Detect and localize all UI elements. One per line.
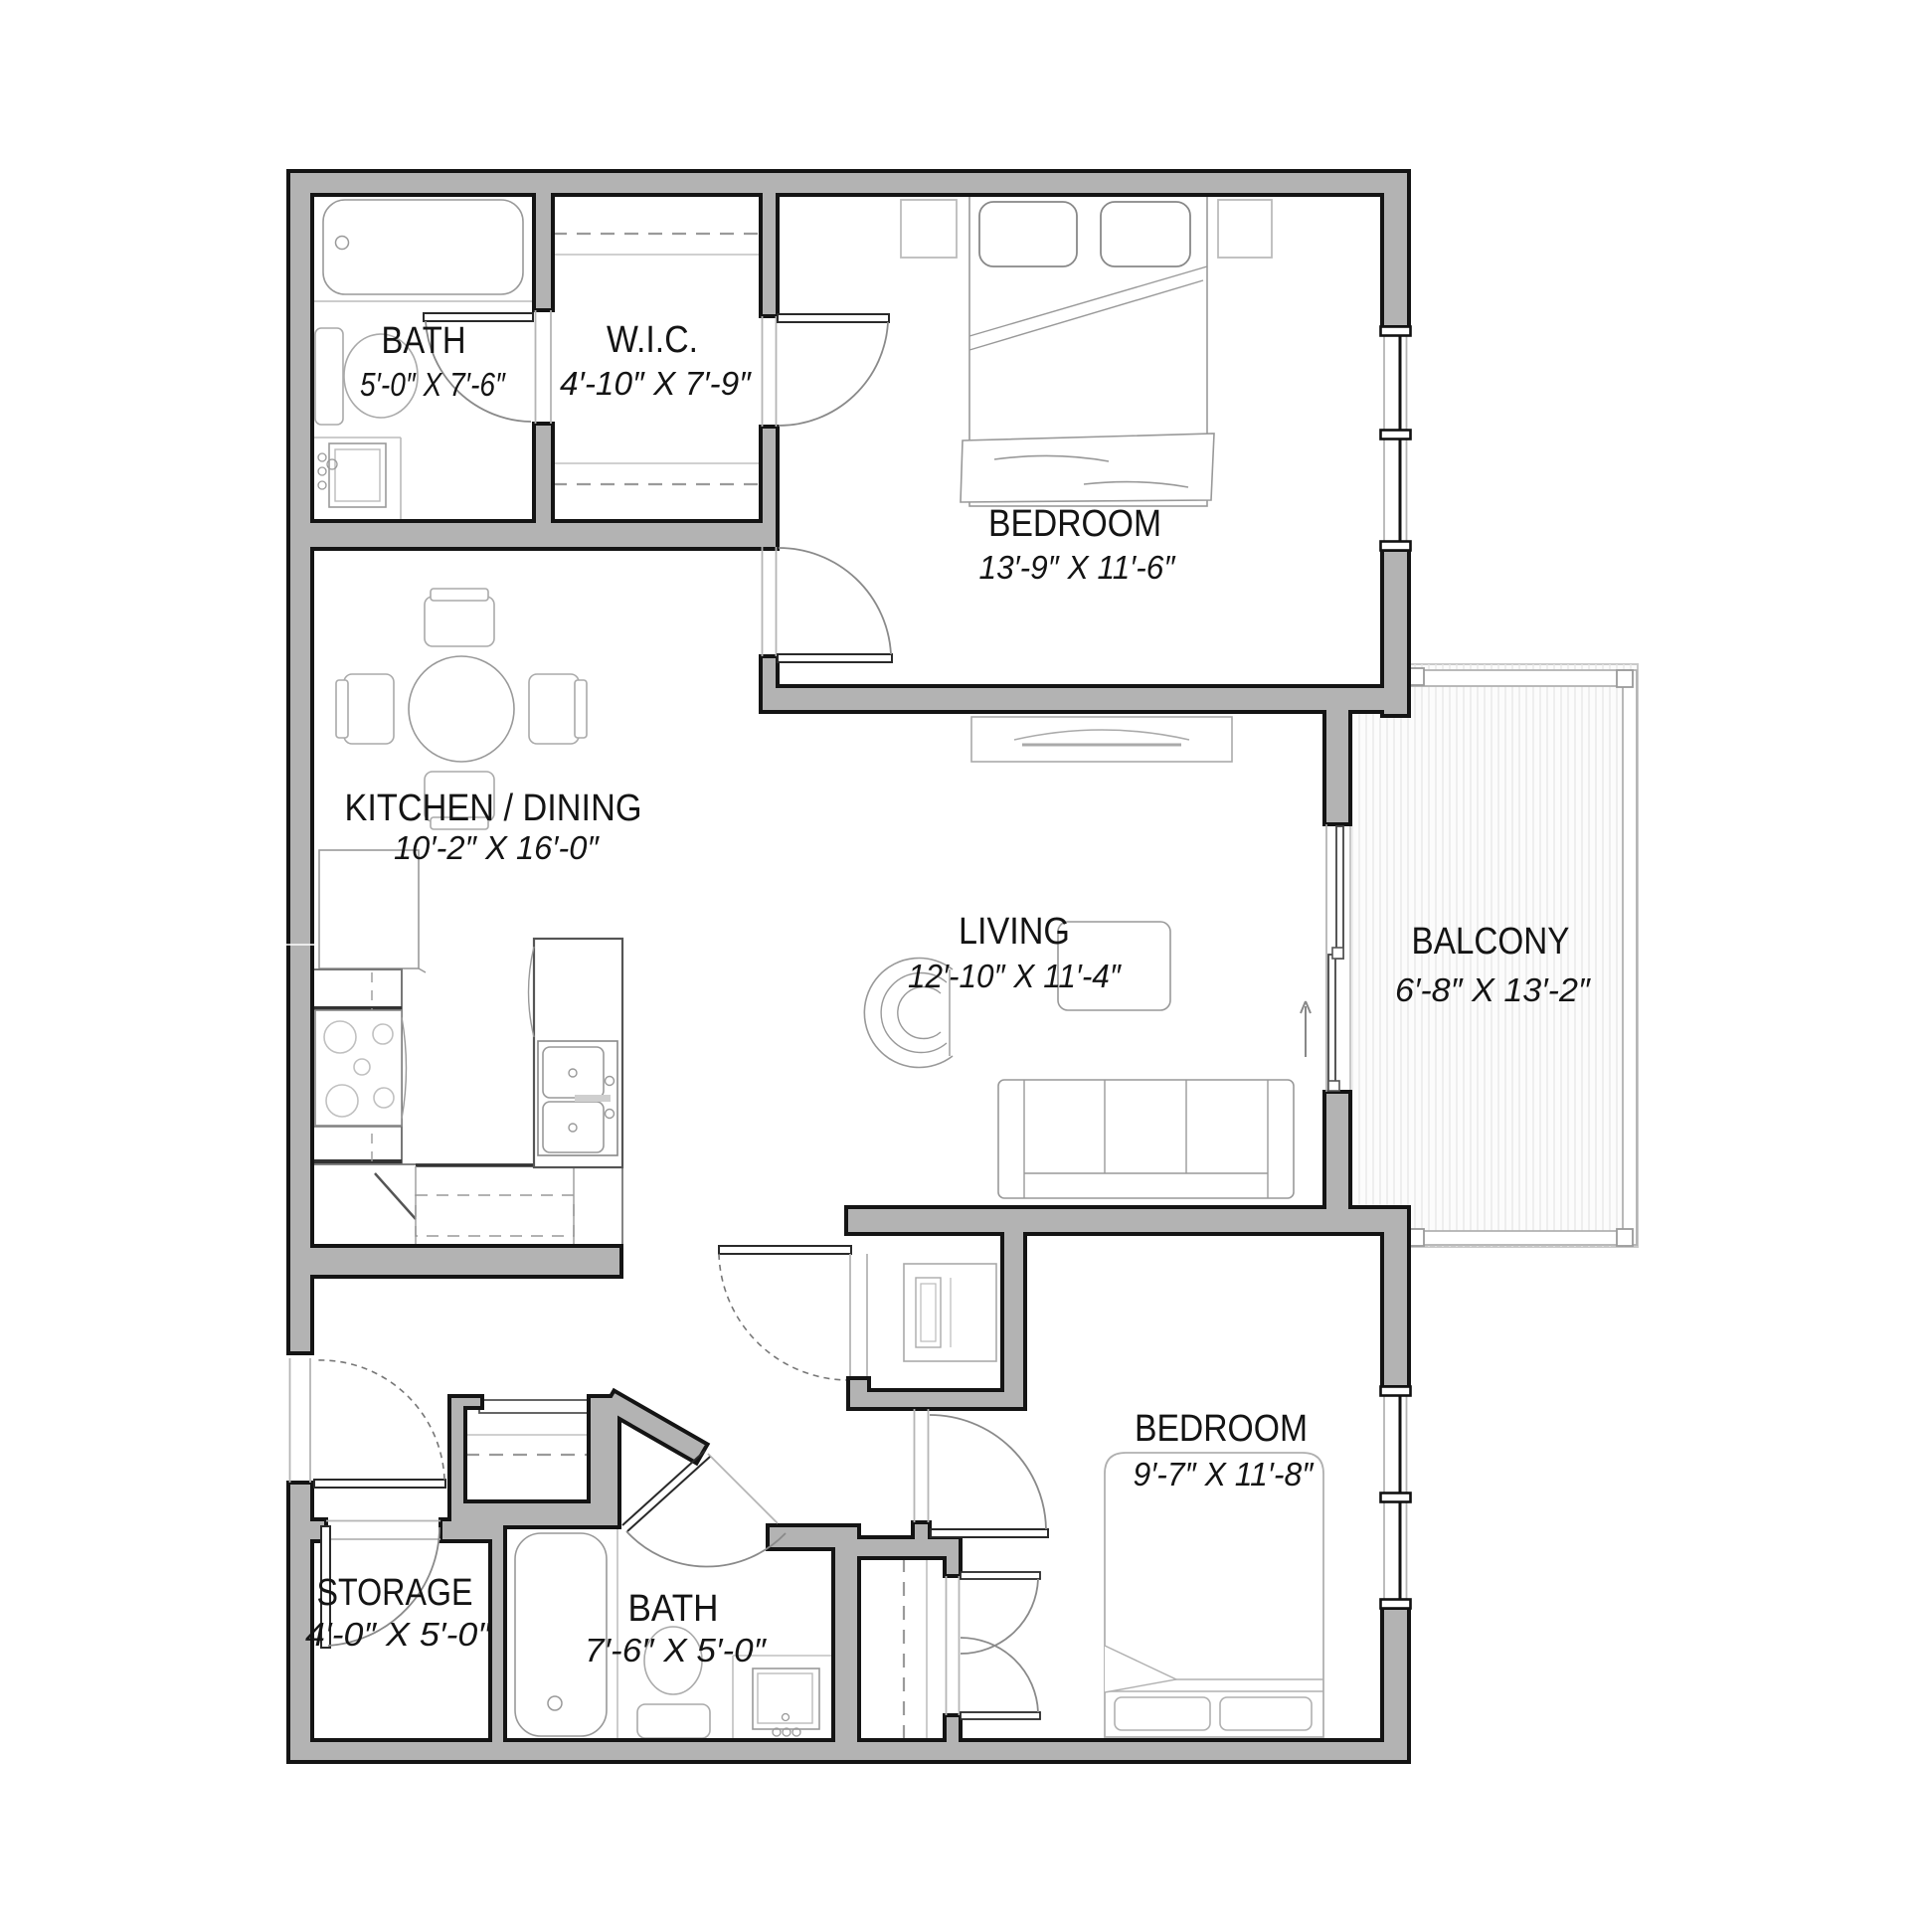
svg-text:10′-2″ X 16′-0″: 10′-2″ X 16′-0″ — [394, 829, 600, 866]
svg-text:BALCONY: BALCONY — [1412, 921, 1570, 963]
svg-text:7′-6″ X 5′-0″: 7′-6″ X 5′-0″ — [585, 1632, 767, 1669]
svg-text:4′-0″ X 5′-0″: 4′-0″ X 5′-0″ — [305, 1616, 491, 1653]
svg-text:KITCHEN / DINING: KITCHEN / DINING — [345, 788, 642, 829]
svg-text:6′-8″ X 13′-2″: 6′-8″ X 13′-2″ — [1395, 971, 1591, 1008]
svg-text:W.I.C.: W.I.C. — [607, 319, 698, 361]
svg-text:5′-0″ X 7′-6″: 5′-0″ X 7′-6″ — [360, 366, 506, 403]
svg-text:BATH: BATH — [382, 320, 466, 362]
svg-text:9′-7″ X 11′-8″: 9′-7″ X 11′-8″ — [1134, 1456, 1315, 1493]
svg-text:4′-10″ X 7′-9″: 4′-10″ X 7′-9″ — [560, 365, 752, 402]
svg-text:BEDROOM: BEDROOM — [988, 503, 1161, 545]
svg-text:12′-10″ X 11′-4″: 12′-10″ X 11′-4″ — [908, 958, 1122, 994]
svg-text:LIVING: LIVING — [959, 911, 1070, 953]
svg-text:BATH: BATH — [628, 1588, 719, 1630]
svg-text:BEDROOM: BEDROOM — [1135, 1408, 1308, 1450]
svg-text:13′-9″ X 11′-6″: 13′-9″ X 11′-6″ — [979, 549, 1176, 586]
svg-text:STORAGE: STORAGE — [317, 1572, 473, 1614]
